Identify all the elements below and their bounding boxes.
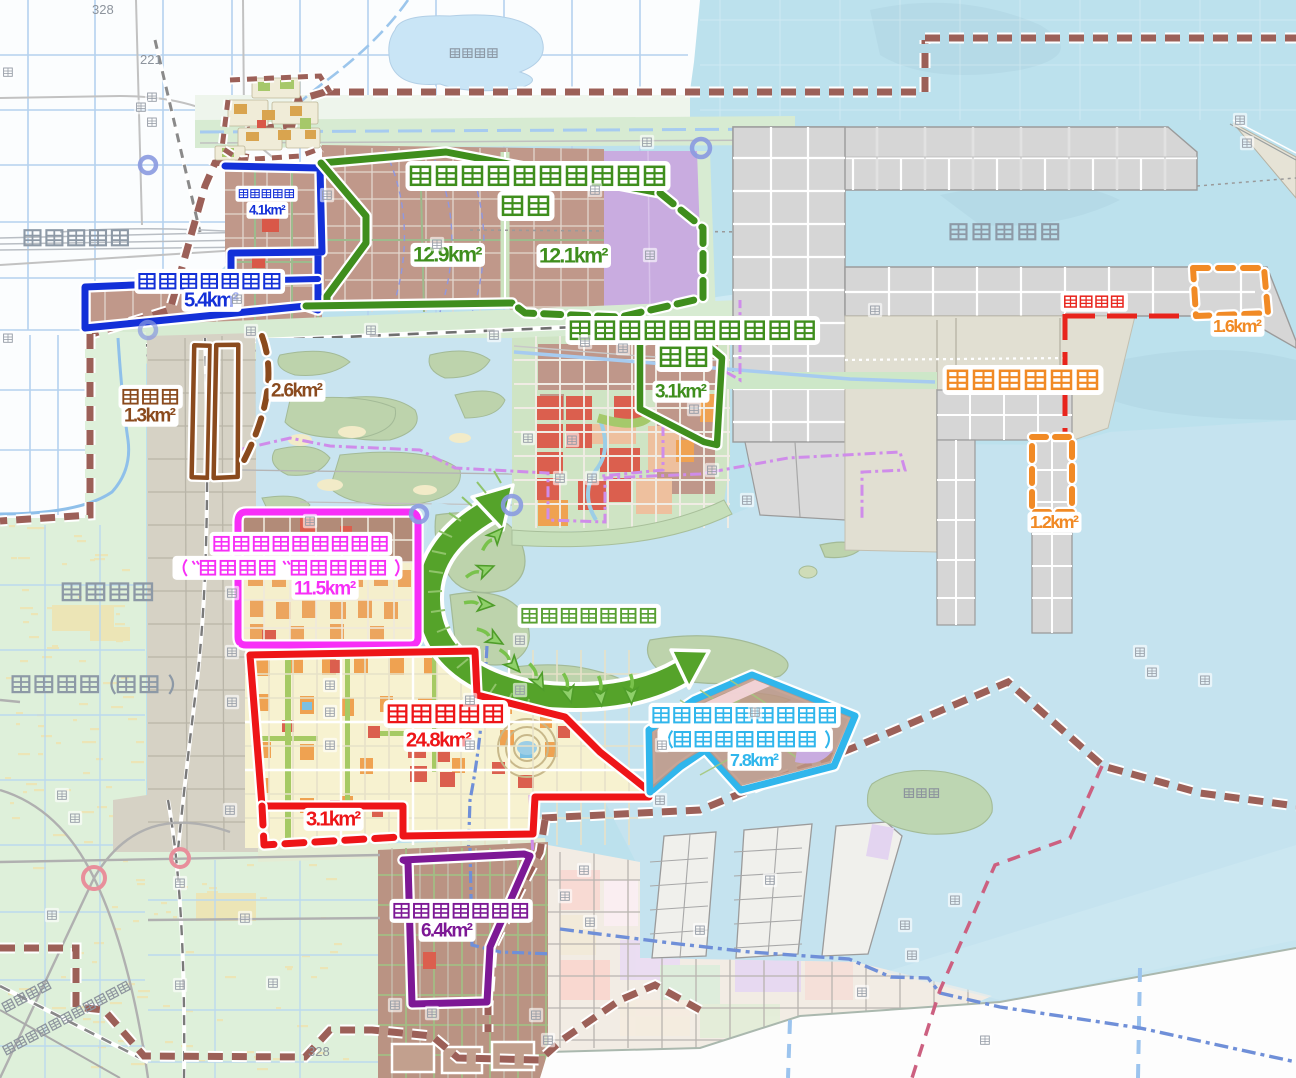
svg-text:11.5km²: 11.5km² [294, 579, 356, 600]
svg-text:221: 221 [140, 52, 162, 67]
svg-text:1.6km²: 1.6km² [1213, 316, 1262, 336]
svg-text:12.1km²: 12.1km² [539, 243, 609, 267]
svg-text:3.1km²: 3.1km² [306, 809, 361, 831]
svg-text:328: 328 [308, 1044, 330, 1059]
svg-text:1.2km²: 1.2km² [1030, 512, 1079, 532]
svg-text:1.3km²: 1.3km² [124, 406, 176, 427]
svg-text:4.1km²: 4.1km² [249, 202, 286, 217]
svg-text:3.1km²: 3.1km² [655, 382, 707, 403]
svg-text:24.8km²: 24.8km² [406, 730, 472, 752]
svg-text:2.6km²: 2.6km² [271, 381, 323, 402]
svg-text:12.9km²: 12.9km² [413, 242, 483, 266]
svg-text:328: 328 [92, 2, 114, 17]
svg-text:6.4km²: 6.4km² [421, 921, 473, 942]
svg-text:7.8km²: 7.8km² [730, 750, 779, 770]
